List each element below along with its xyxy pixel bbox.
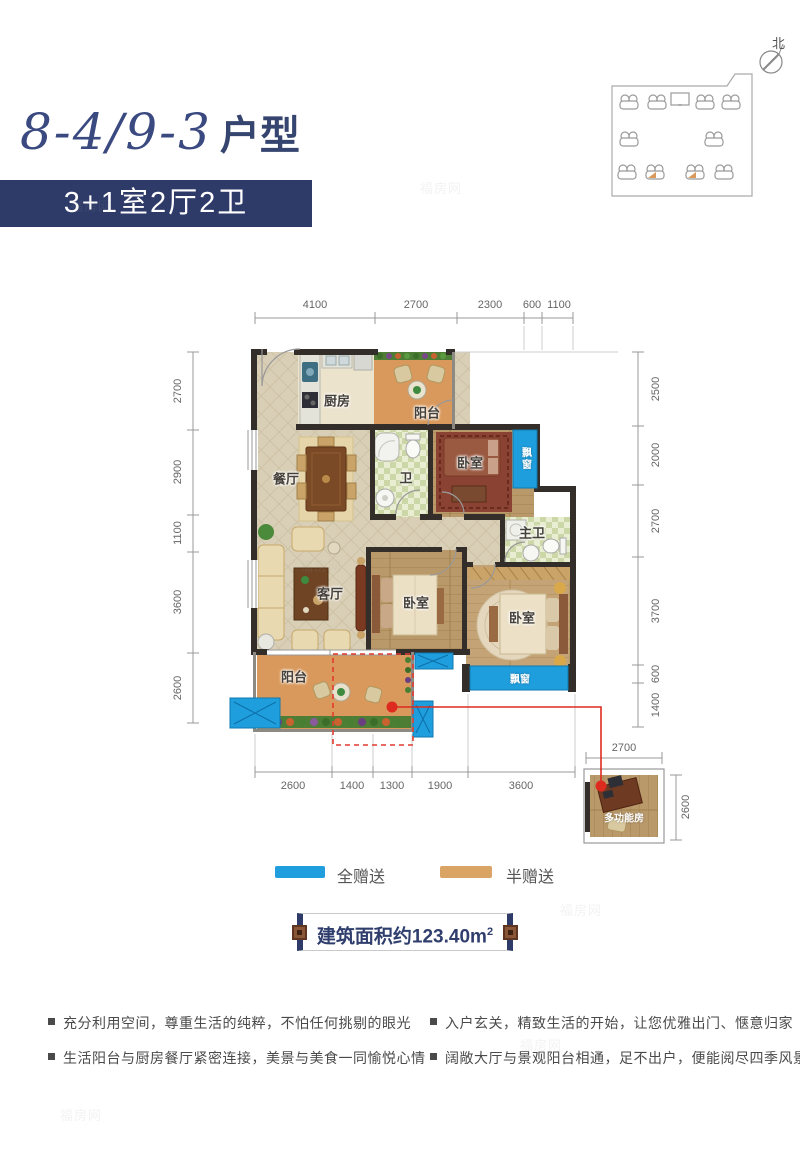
banner-ornament-right (503, 925, 518, 940)
dim-bottom-4: 1900 (428, 780, 452, 792)
dim-left-5: 2600 (172, 676, 184, 700)
bullet-icon (48, 1053, 55, 1060)
page-title: 8-4/9-3 户型 (0, 84, 312, 180)
area-banner: 建筑面积约123.40m2 (297, 913, 513, 951)
dim-top-2: 2700 (404, 299, 428, 311)
unit-type-suffix: 户型 (220, 103, 300, 161)
dim-right-4: 3700 (650, 599, 662, 623)
banner-ornament-left (292, 925, 307, 940)
dim-left-3: 1100 (172, 521, 184, 545)
watermark: 福房网 (300, 556, 342, 575)
dim-bottom-1: 2600 (281, 780, 305, 792)
dim-right-2: 2000 (650, 443, 662, 467)
dim-right-5: 600 (650, 665, 662, 683)
legend-swatch-half-gift (440, 866, 492, 878)
dim-bottom-3: 1300 (380, 780, 404, 792)
dim-top-5: 1100 (547, 299, 571, 311)
dim-top-4: 600 (523, 299, 541, 311)
dim-multi-width: 2700 (612, 742, 636, 754)
watermark: 福房网 (60, 1105, 102, 1124)
watermark: 福房网 (560, 900, 602, 919)
dim-top-1: 4100 (303, 299, 327, 311)
legend-swatch-full-gift (275, 866, 325, 878)
feature-left-2: 生活阳台与厨房餐厅紧密连接，美景与美食一同愉悦心情 (48, 1048, 426, 1068)
room-label-bedroom-tr: 卧室 (457, 453, 483, 472)
dim-right-6: 1400 (650, 693, 662, 717)
room-label-bath: 卫 (399, 468, 412, 487)
room-label-bay-right: 飘窗 (518, 447, 533, 471)
room-label-kitchen: 厨房 (324, 391, 350, 410)
room-label-living: 客厅 (317, 584, 343, 603)
dim-top-3: 2300 (478, 299, 502, 311)
layout-spec-bar: 3+1室2厅2卫 (0, 180, 312, 227)
watermark: 福房网 (70, 196, 112, 215)
room-label-multi: 多功能房 (604, 810, 644, 825)
room-label-bedroom-br: 卧室 (509, 608, 535, 627)
room-label-balcony-top: 阳台 (414, 403, 440, 422)
dim-bottom-2: 1400 (340, 780, 364, 792)
feature-right-1: 入户玄关，精致生活的开始，让您优雅出门、惬意归家 (430, 1013, 793, 1033)
bullet-icon (430, 1053, 437, 1060)
dim-left-1: 2700 (172, 379, 184, 403)
dim-right-1: 2500 (650, 377, 662, 401)
feature-left-1: 充分利用空间，尊重生活的纯粹，不怕任何挑剔的眼光 (48, 1013, 411, 1033)
dim-left-2: 2900 (172, 460, 184, 484)
room-label-dining: 餐厅 (273, 469, 299, 488)
room-label-balcony-bottom: 阳台 (281, 667, 307, 686)
north-indicator-label: 北 (772, 33, 785, 52)
room-label-bay-bottom: 飘窗 (510, 671, 530, 686)
feature-right-2: 阔敞大厅与景观阳台相通，足不出户，便能阅尽四季风景 (430, 1048, 800, 1068)
bullet-icon (48, 1018, 55, 1025)
building-area-text: 建筑面积约123.40m2 (303, 914, 507, 955)
dim-left-4: 3600 (172, 590, 184, 614)
room-label-master-bath: 主卫 (519, 523, 545, 542)
legend-label-full-gift: 全赠送 (337, 863, 385, 887)
watermark: 福房网 (420, 178, 462, 197)
dim-multi-height: 2600 (680, 795, 692, 819)
floorplan-poster: 8-4/9-3 户型 3+1室2厅2卫 北 厨房 阳台 餐厅 卫 卧室 飘窗 主… (0, 0, 800, 1149)
unit-number: 8-4/9-3 (20, 103, 212, 161)
bullet-icon (430, 1018, 437, 1025)
room-label-bedroom-mid: 卧室 (403, 593, 429, 612)
watermark: 福房网 (520, 1035, 562, 1054)
dim-right-3: 2700 (650, 509, 662, 533)
dim-bottom-5: 3600 (509, 780, 533, 792)
legend-label-half-gift: 半赠送 (506, 863, 554, 887)
